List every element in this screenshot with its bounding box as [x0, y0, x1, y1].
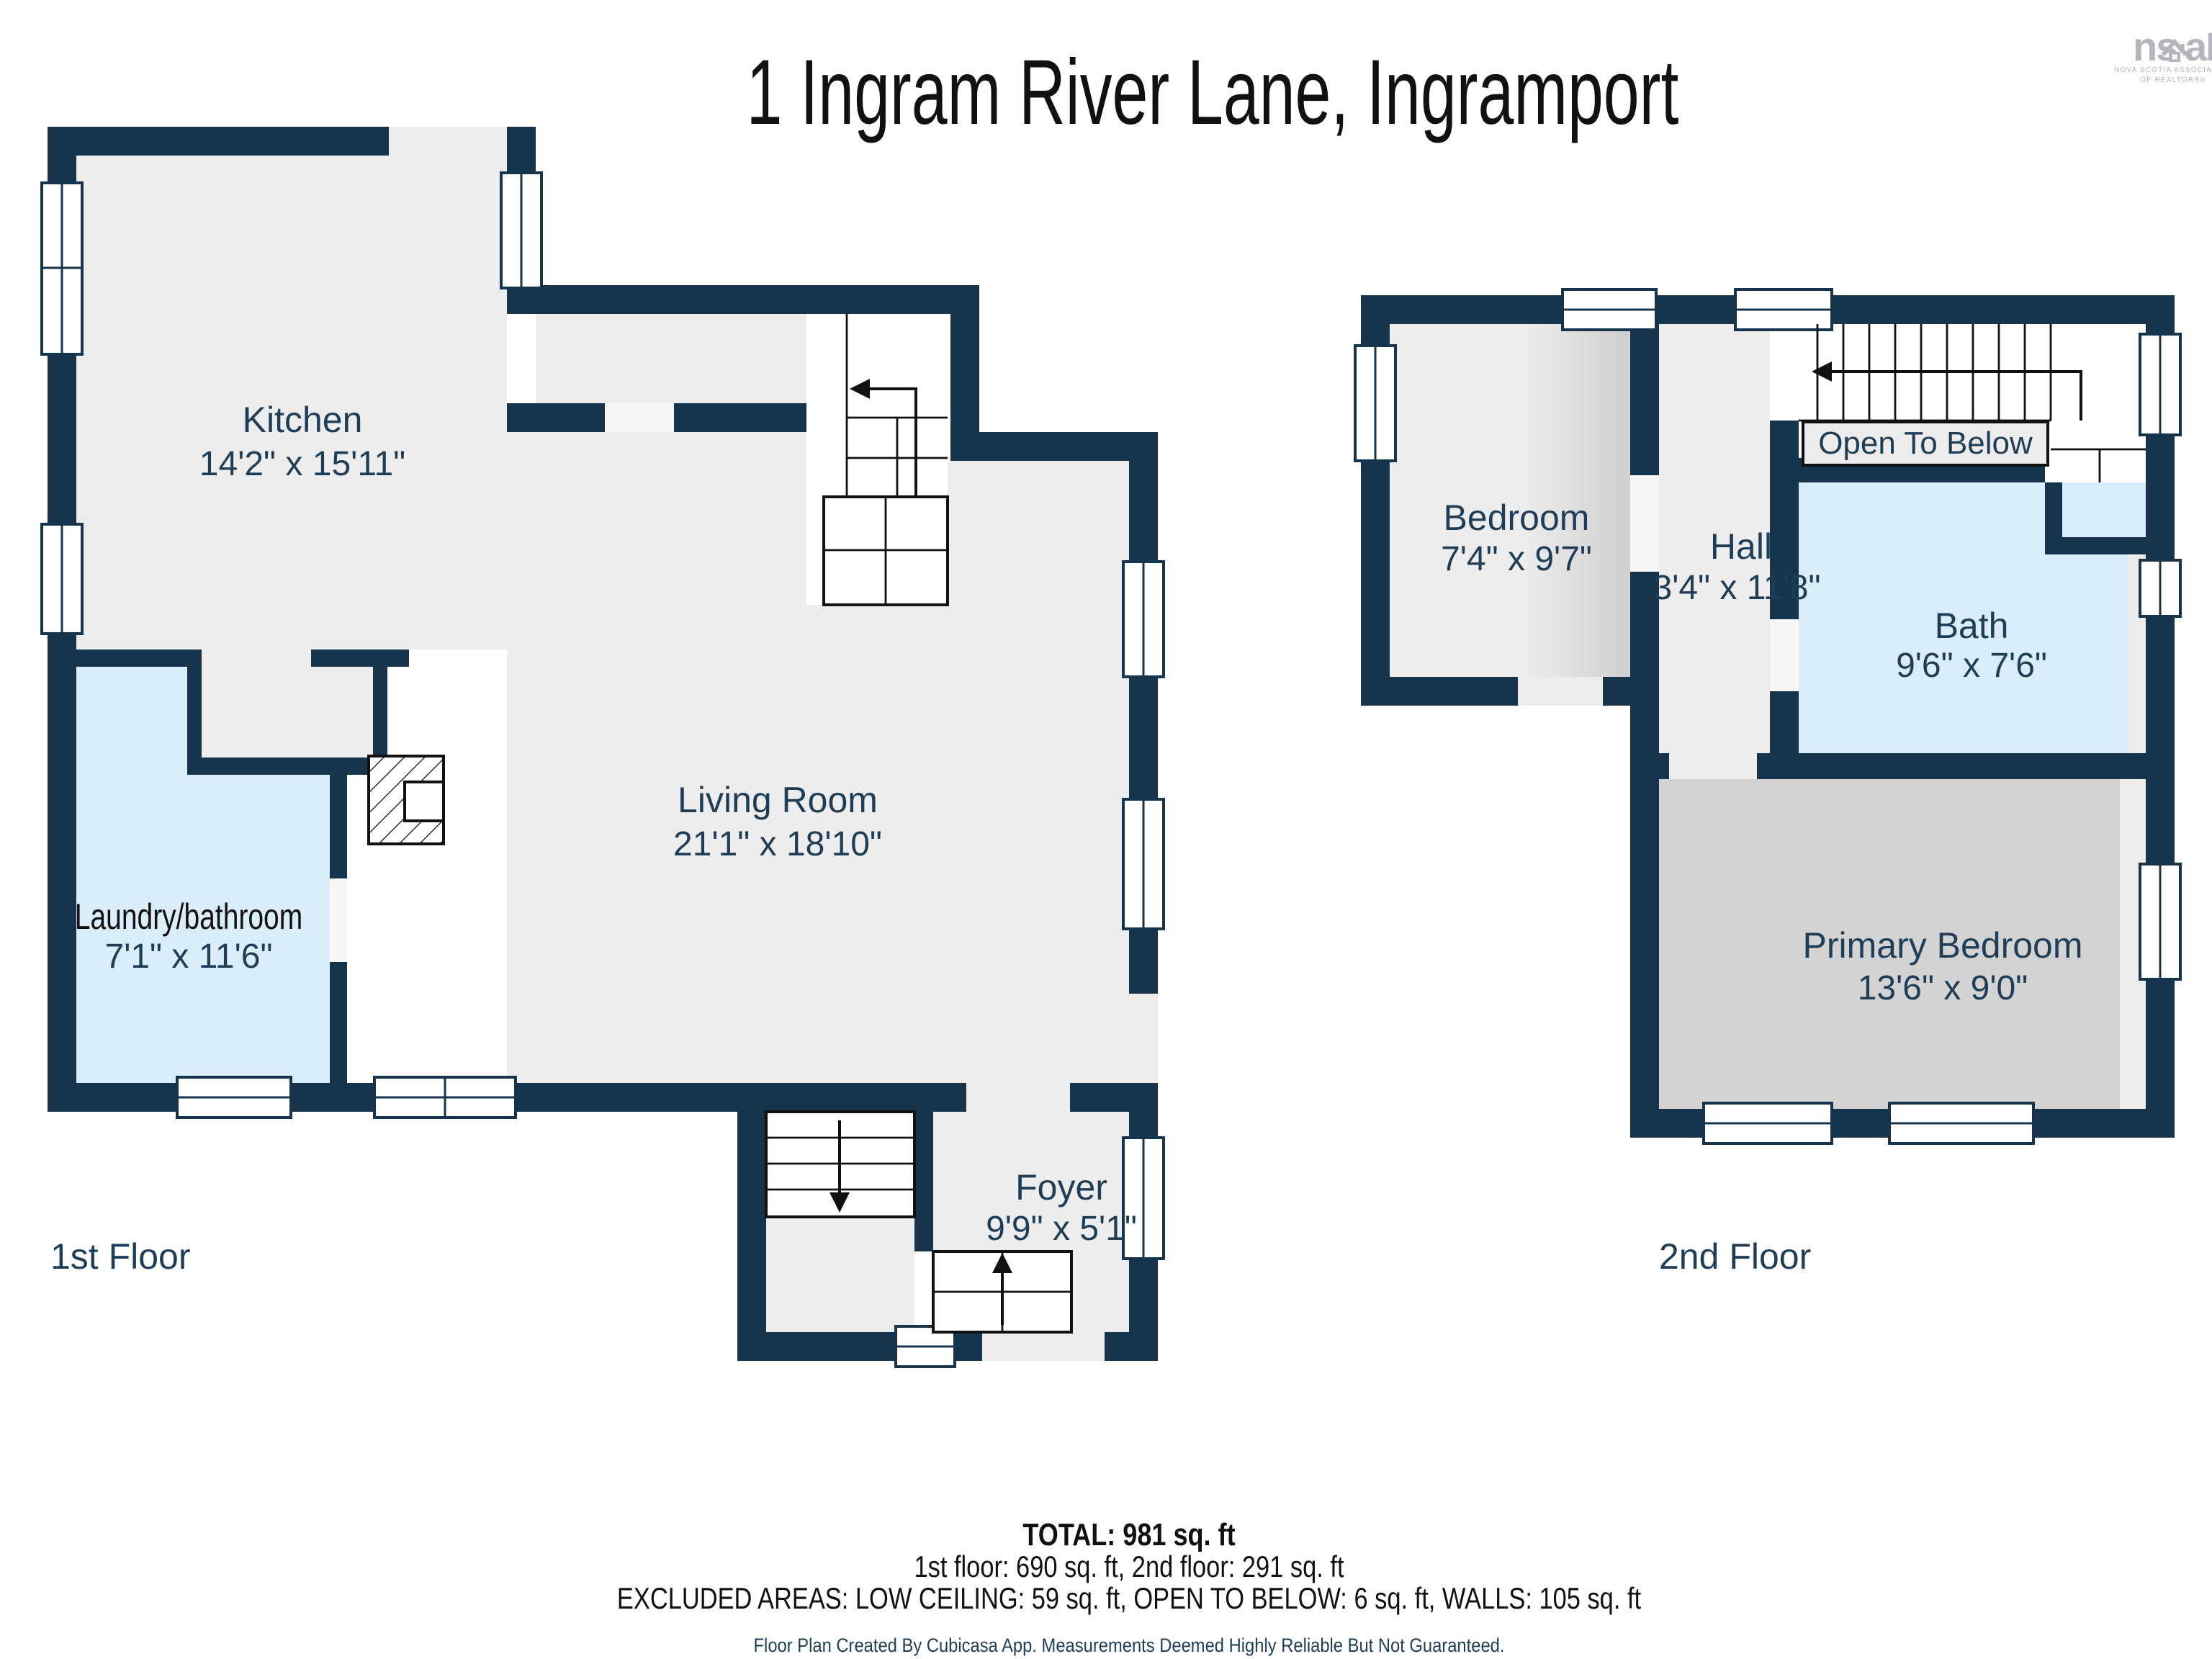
logo-caption-2: OF REALTORS®	[2140, 76, 2206, 84]
window	[42, 183, 82, 354]
window	[1704, 1103, 1832, 1143]
window	[2140, 864, 2180, 979]
window	[1123, 799, 1164, 929]
staircase-up	[806, 314, 948, 605]
window	[1735, 289, 1832, 330]
footer-floors-breakdown: 1st floor: 690 sq. ft, 2nd floor: 291 sq…	[914, 1550, 1344, 1584]
living-room-floor	[507, 432, 806, 1083]
fireplace-hatch	[369, 756, 444, 844]
window	[1563, 289, 1656, 330]
bedroom-dimensions: 7'4" x 9'7"	[1441, 540, 1592, 578]
first-floor-caption: 1st Floor	[50, 1236, 191, 1277]
footer-excluded-areas: EXCLUDED AREAS: LOW CEILING: 59 sq. ft, …	[617, 1582, 1641, 1616]
window	[42, 524, 82, 634]
open-to-below-label: Open To Below	[1818, 426, 2033, 461]
floor-plan-page: 1 Ingram River Lane, Ingramport ns aR NO…	[0, 0, 2212, 1659]
window	[501, 173, 541, 288]
footer-disclaimer: Floor Plan Created By Cubicasa App. Meas…	[754, 1635, 1505, 1657]
page-title: 1 Ingram River Lane, Ingramport	[747, 41, 1679, 144]
window	[177, 1077, 291, 1118]
footer-total: TOTAL: 981 sq. ft	[1022, 1517, 1235, 1552]
primary-bedroom-label: Primary Bedroom	[1803, 925, 2083, 966]
foyer-label: Foyer	[1015, 1167, 1107, 1208]
living-room-label: Living Room	[678, 780, 878, 820]
open-to-below: Open To Below	[1803, 422, 2048, 465]
window	[2140, 560, 2180, 616]
window	[2140, 334, 2180, 435]
logo-caption-1: NOVA SCOTIA ASSOCIATION	[2114, 66, 2212, 74]
window	[374, 1077, 516, 1118]
laundry-bathroom-label: Laundry/bathroom	[75, 896, 302, 937]
window	[1123, 562, 1164, 677]
logo-ar: aR	[2185, 24, 2212, 69]
kitchen-label: Kitchen	[243, 400, 363, 440]
primary-bedroom-dimensions: 13'6" x 9'0"	[1858, 969, 2028, 1007]
bath-dimensions: 9'6" x 7'6"	[1896, 647, 2047, 685]
bath-label: Bath	[1935, 606, 2009, 646]
window	[1355, 346, 1395, 461]
foyer-dimensions: 9'9" x 5'1"	[986, 1210, 1137, 1248]
hall-dimensions: 3'4" x 11'8"	[1653, 569, 1821, 607]
kitchen-dimensions: 14'2" x 15'11"	[199, 445, 405, 483]
bedroom-label: Bedroom	[1444, 498, 1590, 538]
window	[1889, 1103, 2033, 1143]
hall-label: Hall	[1710, 526, 1772, 567]
second-floor-caption: 2nd Floor	[1659, 1236, 1811, 1277]
laundry-bathroom-dimensions: 7'1" x 11'6"	[105, 938, 273, 976]
living-room-dimensions: 21'1" x 18'10"	[673, 825, 882, 863]
